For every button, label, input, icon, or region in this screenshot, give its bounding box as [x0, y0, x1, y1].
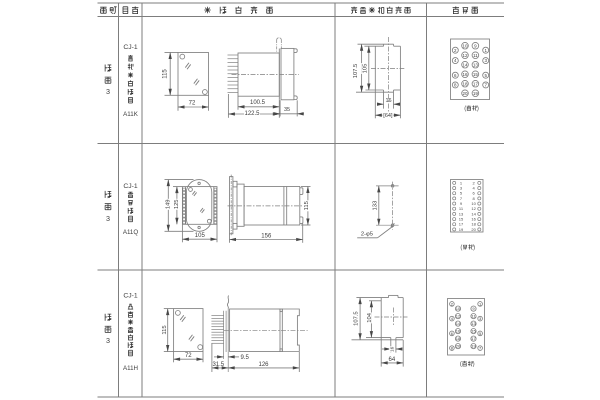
svg-text:19: 19: [459, 227, 464, 232]
svg-text:A11K: A11K: [123, 111, 139, 118]
svg-text:31.5: 31.5: [212, 362, 224, 368]
svg-text:17: 17: [471, 336, 476, 341]
svg-text:(: (: [460, 245, 462, 251]
svg-text:107.5: 107.5: [353, 311, 359, 326]
svg-text:115: 115: [163, 69, 169, 79]
svg-text:17: 17: [473, 81, 479, 86]
svg-text:13: 13: [471, 321, 476, 326]
svg-text:): ): [473, 362, 475, 368]
svg-text:15: 15: [471, 329, 476, 334]
svg-text:16: 16: [385, 98, 391, 104]
svg-text:72: 72: [189, 101, 196, 107]
svg-text:16: 16: [462, 72, 468, 77]
svg-text:156: 156: [261, 233, 272, 239]
svg-text:149: 149: [165, 199, 171, 209]
svg-text:3: 3: [106, 214, 110, 223]
svg-text:2-φ5: 2-φ5: [361, 232, 373, 238]
svg-text:A11Q: A11Q: [123, 229, 139, 236]
svg-text:64: 64: [389, 357, 396, 363]
svg-text:): ): [477, 106, 479, 112]
svg-text:72: 72: [185, 353, 192, 359]
svg-text:126: 126: [258, 362, 269, 368]
svg-text:CJ-1: CJ-1: [123, 44, 138, 51]
svg-text:115: 115: [162, 325, 168, 334]
svg-text:): ): [473, 245, 475, 251]
svg-text:10: 10: [456, 306, 461, 311]
svg-text:105: 105: [195, 233, 206, 239]
svg-text:11: 11: [473, 53, 478, 58]
svg-text:10: 10: [462, 43, 468, 48]
svg-text:125: 125: [174, 199, 180, 209]
svg-text:13: 13: [473, 62, 479, 67]
svg-text:105: 105: [362, 64, 368, 74]
svg-text:18: 18: [456, 336, 461, 341]
svg-text:12: 12: [462, 53, 468, 58]
svg-text:(: (: [460, 362, 462, 368]
svg-text:122.5: 122.5: [244, 111, 260, 117]
svg-text:(: (: [464, 106, 466, 112]
svg-text:107.5: 107.5: [353, 64, 359, 79]
svg-text:16: 16: [456, 329, 461, 334]
svg-text:100.5: 100.5: [250, 100, 266, 106]
svg-text:3: 3: [106, 87, 110, 96]
svg-text:19: 19: [473, 91, 479, 96]
svg-text:115: 115: [304, 201, 310, 210]
svg-text:20: 20: [471, 227, 476, 232]
svg-text:14: 14: [456, 321, 461, 326]
svg-text:18: 18: [462, 81, 468, 86]
svg-text:A11H: A11H: [123, 365, 138, 372]
svg-text:20: 20: [456, 344, 461, 349]
svg-text:133: 133: [372, 201, 378, 211]
svg-text:3: 3: [106, 336, 110, 345]
svg-text:20: 20: [462, 91, 468, 96]
svg-text:[64]: [64]: [383, 113, 393, 119]
svg-text:16: 16: [389, 346, 395, 352]
svg-text:19: 19: [471, 344, 476, 349]
svg-text:35: 35: [284, 107, 290, 113]
svg-text:104: 104: [367, 312, 373, 322]
svg-text:12: 12: [456, 314, 461, 319]
svg-text:9.5: 9.5: [241, 355, 250, 361]
svg-text:CJ-1: CJ-1: [123, 183, 138, 190]
svg-text:15: 15: [473, 72, 479, 77]
svg-text:14: 14: [462, 62, 468, 67]
svg-text:CJ-1: CJ-1: [123, 292, 138, 299]
